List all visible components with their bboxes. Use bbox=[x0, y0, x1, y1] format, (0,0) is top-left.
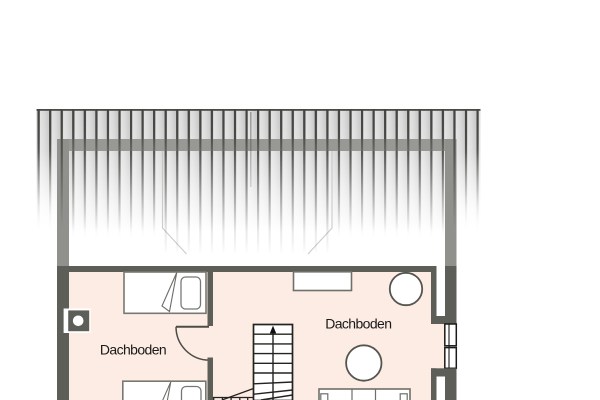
svg-text:Dachboden: Dachboden bbox=[100, 342, 166, 358]
svg-text:Dachboden: Dachboden bbox=[325, 316, 391, 332]
